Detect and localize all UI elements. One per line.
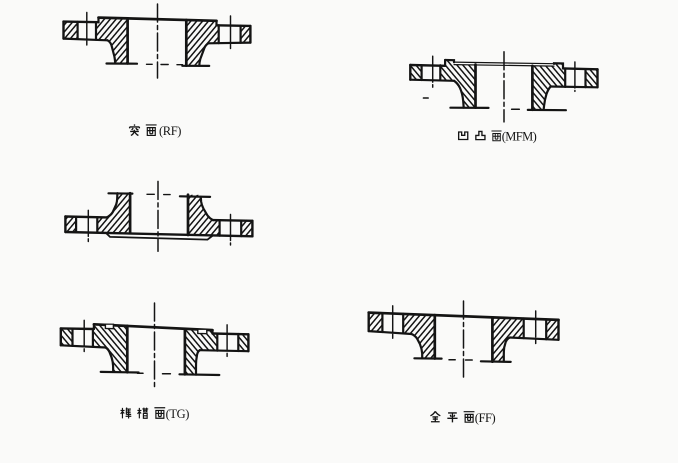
svg-text:(TG): (TG) — [166, 407, 190, 421]
svg-text:(FF): (FF) — [475, 411, 496, 425]
svg-text:(RF): (RF) — [159, 124, 181, 138]
svg-text:(MFM): (MFM) — [502, 130, 537, 144]
